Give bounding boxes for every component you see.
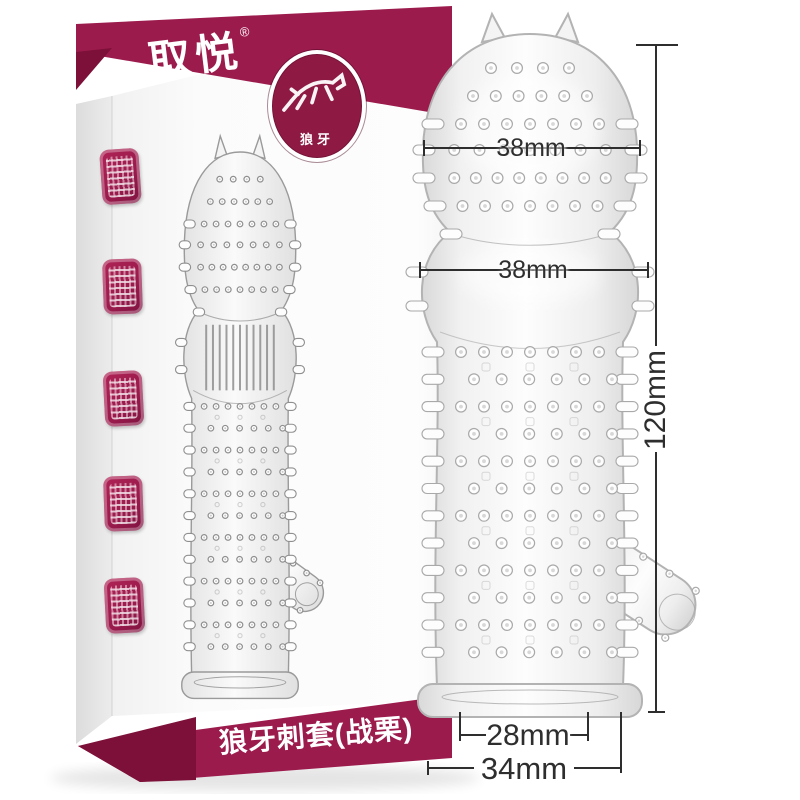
dimension-label-ball-width: 38mm bbox=[483, 256, 583, 285]
dimension-label-total-length: 120mm bbox=[639, 350, 673, 450]
dimension-label-head-width: 38mm bbox=[481, 134, 581, 163]
dimension-label-base-outer: 34mm bbox=[474, 751, 574, 787]
product-listing-image: 取悦® 狼牙 狼牙刺套(战栗) bbox=[0, 0, 800, 800]
dimension-lines bbox=[0, 0, 800, 800]
dimension-label-base-inner: 28mm bbox=[478, 719, 578, 753]
